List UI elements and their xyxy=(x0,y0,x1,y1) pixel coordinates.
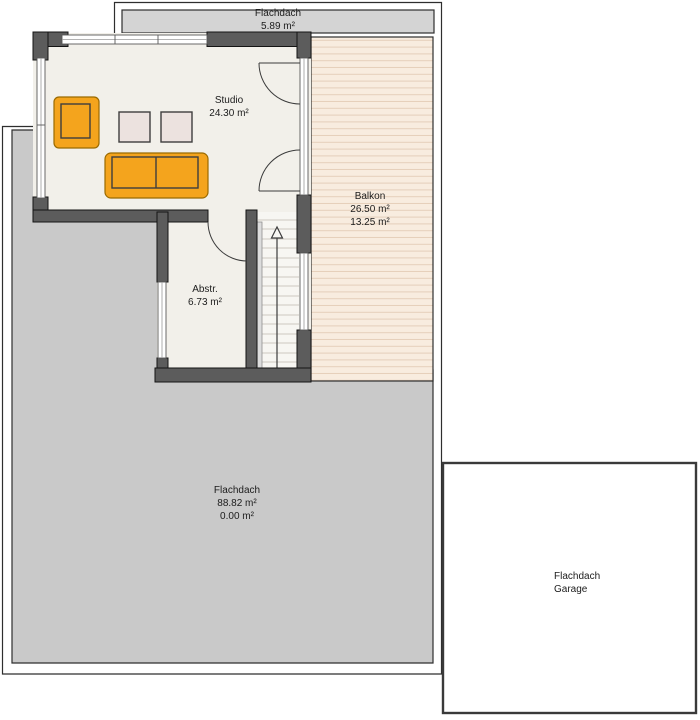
room-area-total: 26.50 m² xyxy=(350,204,389,217)
floor-plan: Flachdach 5.89 m² Studio 24.30 m² Balkon… xyxy=(0,0,700,720)
window-top xyxy=(62,35,207,44)
room-name: Flachdach xyxy=(214,485,260,498)
side-table-1 xyxy=(119,112,150,142)
room-area: 5.89 m² xyxy=(255,21,301,34)
window-abstellraum xyxy=(158,282,166,358)
room-area: 6.73 m² xyxy=(188,297,222,310)
roof-strip-label: Flachdach 5.89 m² xyxy=(255,8,301,34)
room-area-total: 88.82 m² xyxy=(214,498,260,511)
room-name: Balkon xyxy=(350,191,389,204)
window-left xyxy=(37,58,45,198)
floor-plan-drawing xyxy=(0,0,700,720)
abstellraum-label: Abstr. 6.73 m² xyxy=(188,284,222,310)
room-name: Flachdach xyxy=(554,571,600,584)
room-name: Abstr. xyxy=(188,284,222,297)
room-name: Flachdach xyxy=(255,8,301,21)
main-roof-label: Flachdach 88.82 m² 0.00 m² xyxy=(214,485,260,523)
room-area: 24.30 m² xyxy=(209,108,248,121)
armchair xyxy=(54,97,99,148)
side-table-2 xyxy=(161,112,192,142)
balkon-label: Balkon 26.50 m² 13.25 m² xyxy=(350,191,389,229)
window-stairs xyxy=(300,253,308,330)
glass-wall-balcony xyxy=(300,58,308,195)
garage-label: Flachdach Garage xyxy=(554,571,600,597)
stairs-handrail xyxy=(257,222,262,368)
room-type: Garage xyxy=(554,584,600,597)
sofa xyxy=(105,153,208,198)
room-name: Studio xyxy=(209,95,248,108)
room-area-living: 0.00 m² xyxy=(214,511,260,524)
room-area-living: 13.25 m² xyxy=(350,217,389,230)
studio-label: Studio 24.30 m² xyxy=(209,95,248,121)
